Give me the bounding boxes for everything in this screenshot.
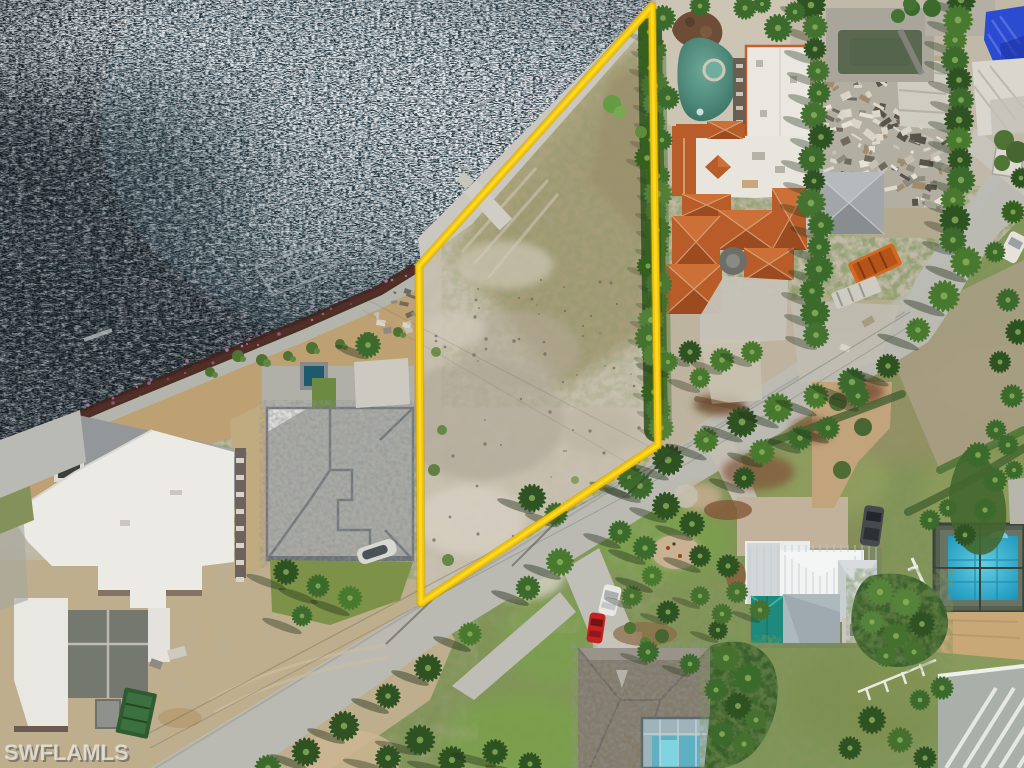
svg-text:SWFLAMLS: SWFLAMLS bbox=[4, 740, 129, 765]
